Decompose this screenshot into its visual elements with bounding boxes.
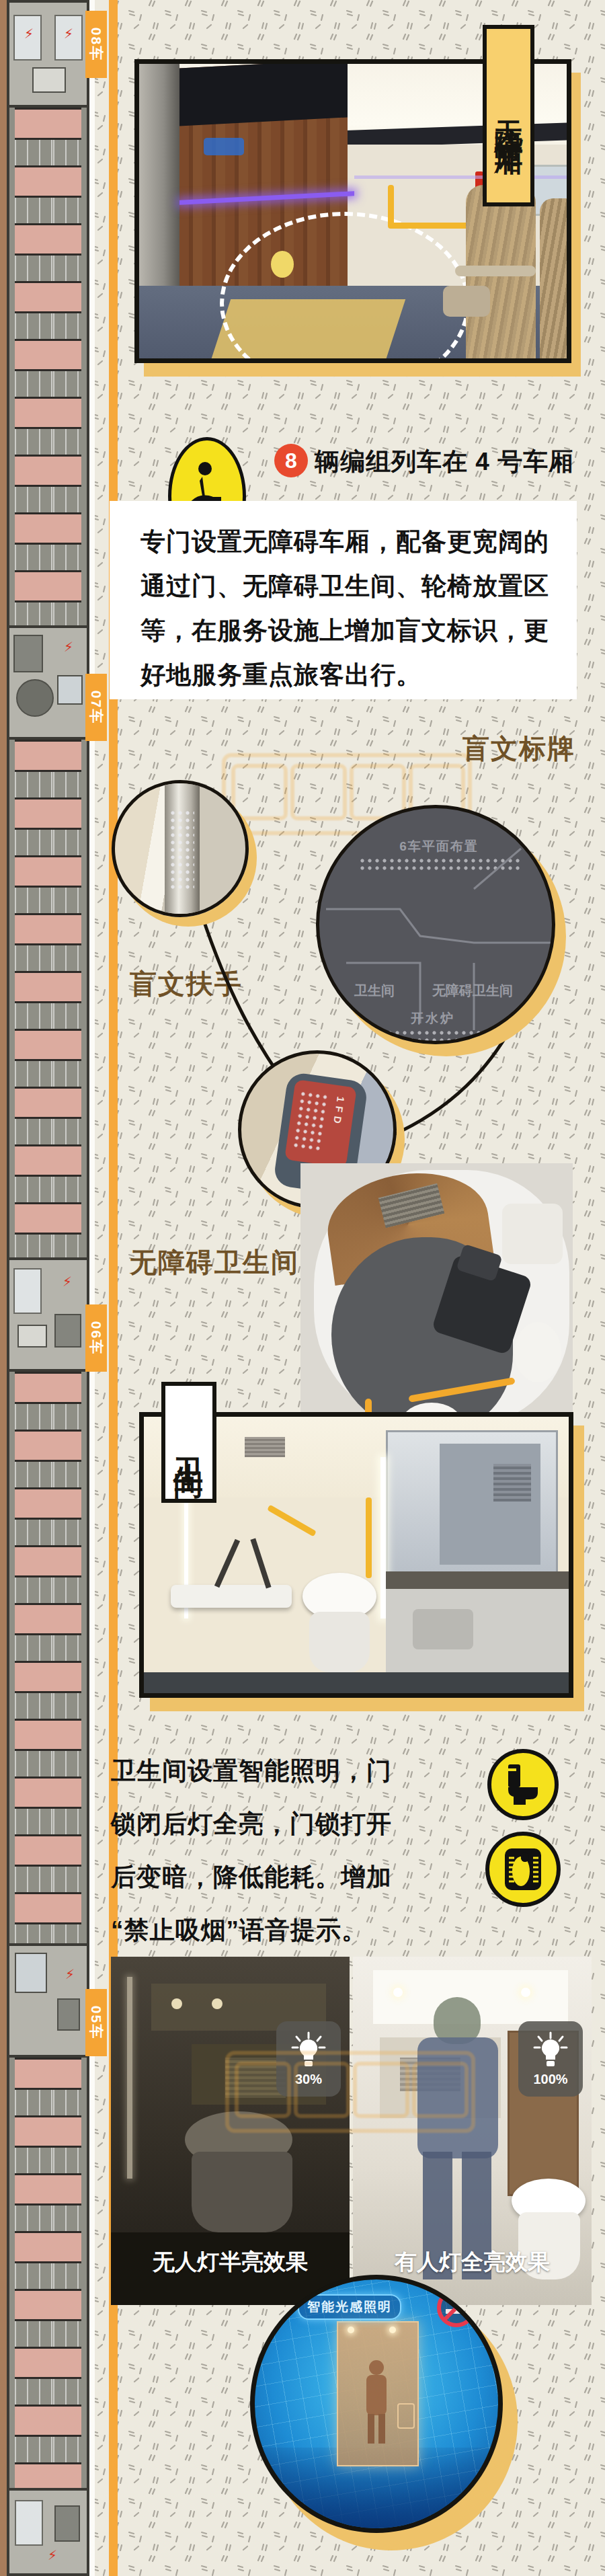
figure-silhouette <box>366 2375 387 2415</box>
wheelchair-location-line1: 辆编组列车在 4 号车厢 <box>315 445 574 479</box>
train-seats-left-column <box>15 1372 54 1943</box>
train-seats-right-column <box>53 2058 81 2488</box>
train-seats-right-column <box>53 740 81 1257</box>
bulb-icon <box>532 2031 569 2069</box>
grab-bar <box>267 1505 317 1537</box>
car-number-label: 07车 <box>87 691 106 724</box>
figure-silhouette <box>368 2414 374 2444</box>
handle-code-text: 1FD <box>331 1096 347 1128</box>
car-number-label: 05车 <box>87 2006 106 2039</box>
badge-number: 8 <box>285 448 297 473</box>
car-number-marker-06: 06车 <box>85 1304 107 1372</box>
sidebar-brown-strip <box>0 0 7 2576</box>
car-number-marker-07: 07车 <box>85 674 107 741</box>
figure-silhouette <box>369 2360 384 2375</box>
accessible-toilet-label: 无障碍卫生间 <box>130 1244 299 1281</box>
train-seats-left-column <box>15 2058 54 2488</box>
braille-sign-label: 盲文标牌 <box>430 730 575 767</box>
braille-sign-photo: 6车平面布置 卫生间 无障碍卫生间 开水炉 <box>316 805 555 1044</box>
bright-caption: 有人灯全亮效果 <box>353 2247 592 2277</box>
train-vestibule: ⚡⚡ <box>9 0 87 108</box>
intro-line: 通过门、无障碍卫生间、轮椅放置区 <box>140 564 577 609</box>
smart-label-badge: 智能光感照明 <box>298 2294 401 2320</box>
paragraph-line: 卫生间设置智能照明，门 <box>111 1744 487 1797</box>
section-title: 无障碍车厢 <box>490 99 528 132</box>
yellow-handrail <box>388 185 394 227</box>
grab-bar <box>366 1497 372 1578</box>
braille-handrail-photo <box>112 780 249 917</box>
squat-toilet-icon <box>501 1846 545 1893</box>
squat-toilet-icon-badge <box>485 1832 561 1907</box>
braille-sign-bottom-text: 开水炉 <box>411 1010 455 1027</box>
train-seats-left-column <box>15 740 54 1257</box>
train-vestibule: ⚡ <box>9 2488 87 2576</box>
car-number-marker-08: 08车 <box>85 11 107 78</box>
car-number-label: 08车 <box>87 28 106 61</box>
braille-sign-left-text: 卫生间 <box>354 982 395 1000</box>
intro-text-box: 专门设置无障碍车厢，配备更宽阔的 通过门、无障碍卫生间、轮椅放置区 等，在服务设… <box>110 501 577 699</box>
intro-line: 等，在服务设施上增加盲文标识，更 <box>140 609 577 653</box>
train-seats-right-column <box>53 1372 81 1943</box>
braille-sign-right-text: 无障碍卫生间 <box>432 982 513 1000</box>
paragraph-line: 锁闭后灯全亮，门锁打开 <box>111 1797 487 1850</box>
intro-line: 专门设置无障碍车厢，配备更宽阔的 <box>140 520 577 564</box>
infographic-page: ⚡⚡ ⚡ ⚡ ⚡ ⚡ 08车 07车 06车 05车 <box>0 0 605 2576</box>
watermark <box>225 2051 475 2133</box>
paragraph-line: “禁止吸烟”语音提示。 <box>111 1904 487 1957</box>
train-vestibule: ⚡ <box>9 1257 87 1372</box>
train-vestibule: ⚡ <box>9 1943 87 2058</box>
car-number-marker-05: 05车 <box>85 1989 107 2056</box>
toilet-icon-badge <box>487 1749 559 1820</box>
train-seats-left-column <box>15 108 54 625</box>
toilet-title-box: 卫生间 <box>161 1382 216 1503</box>
brightness-value: 100% <box>533 2072 567 2087</box>
train-seats-right-column <box>53 108 81 625</box>
paragraph-line: 后变暗，降低能耗。增加 <box>111 1850 487 1904</box>
section-title-banner: 无障碍车厢 <box>483 25 534 206</box>
smart-lighting-paragraph: 卫生间设置智能照明，门 锁闭后灯全亮，门锁打开 后变暗，降低能耗。增加 “禁止吸… <box>111 1744 487 1957</box>
toilet-title: 卫生间 <box>169 1434 209 1450</box>
car-number-label: 06车 <box>87 1321 106 1355</box>
accessible-toilet-photo <box>300 1163 573 1426</box>
figure-silhouette <box>378 2414 385 2444</box>
smart-sensing-photo: 智能光感照明 <box>250 2275 503 2533</box>
smart-label-text: 智能光感照明 <box>307 2300 392 2314</box>
intro-line: 好地服务重点旅客出行。 <box>140 653 577 697</box>
train-vestibule: ⚡ <box>9 625 87 740</box>
toilet-icon <box>503 1763 543 1806</box>
sidebar-white-strip <box>89 0 95 2576</box>
dim-caption: 无人灯半亮效果 <box>111 2247 350 2277</box>
lighting-comparison: 无人灯半亮效果 30% <box>111 1957 592 2305</box>
scan-box <box>337 2321 419 2466</box>
train-floorplan-strip: ⚡⚡ ⚡ ⚡ ⚡ ⚡ <box>7 0 89 2576</box>
car-count-badge-8: 8 <box>274 444 308 477</box>
brightness-badge-100: 100% <box>518 2021 583 2097</box>
